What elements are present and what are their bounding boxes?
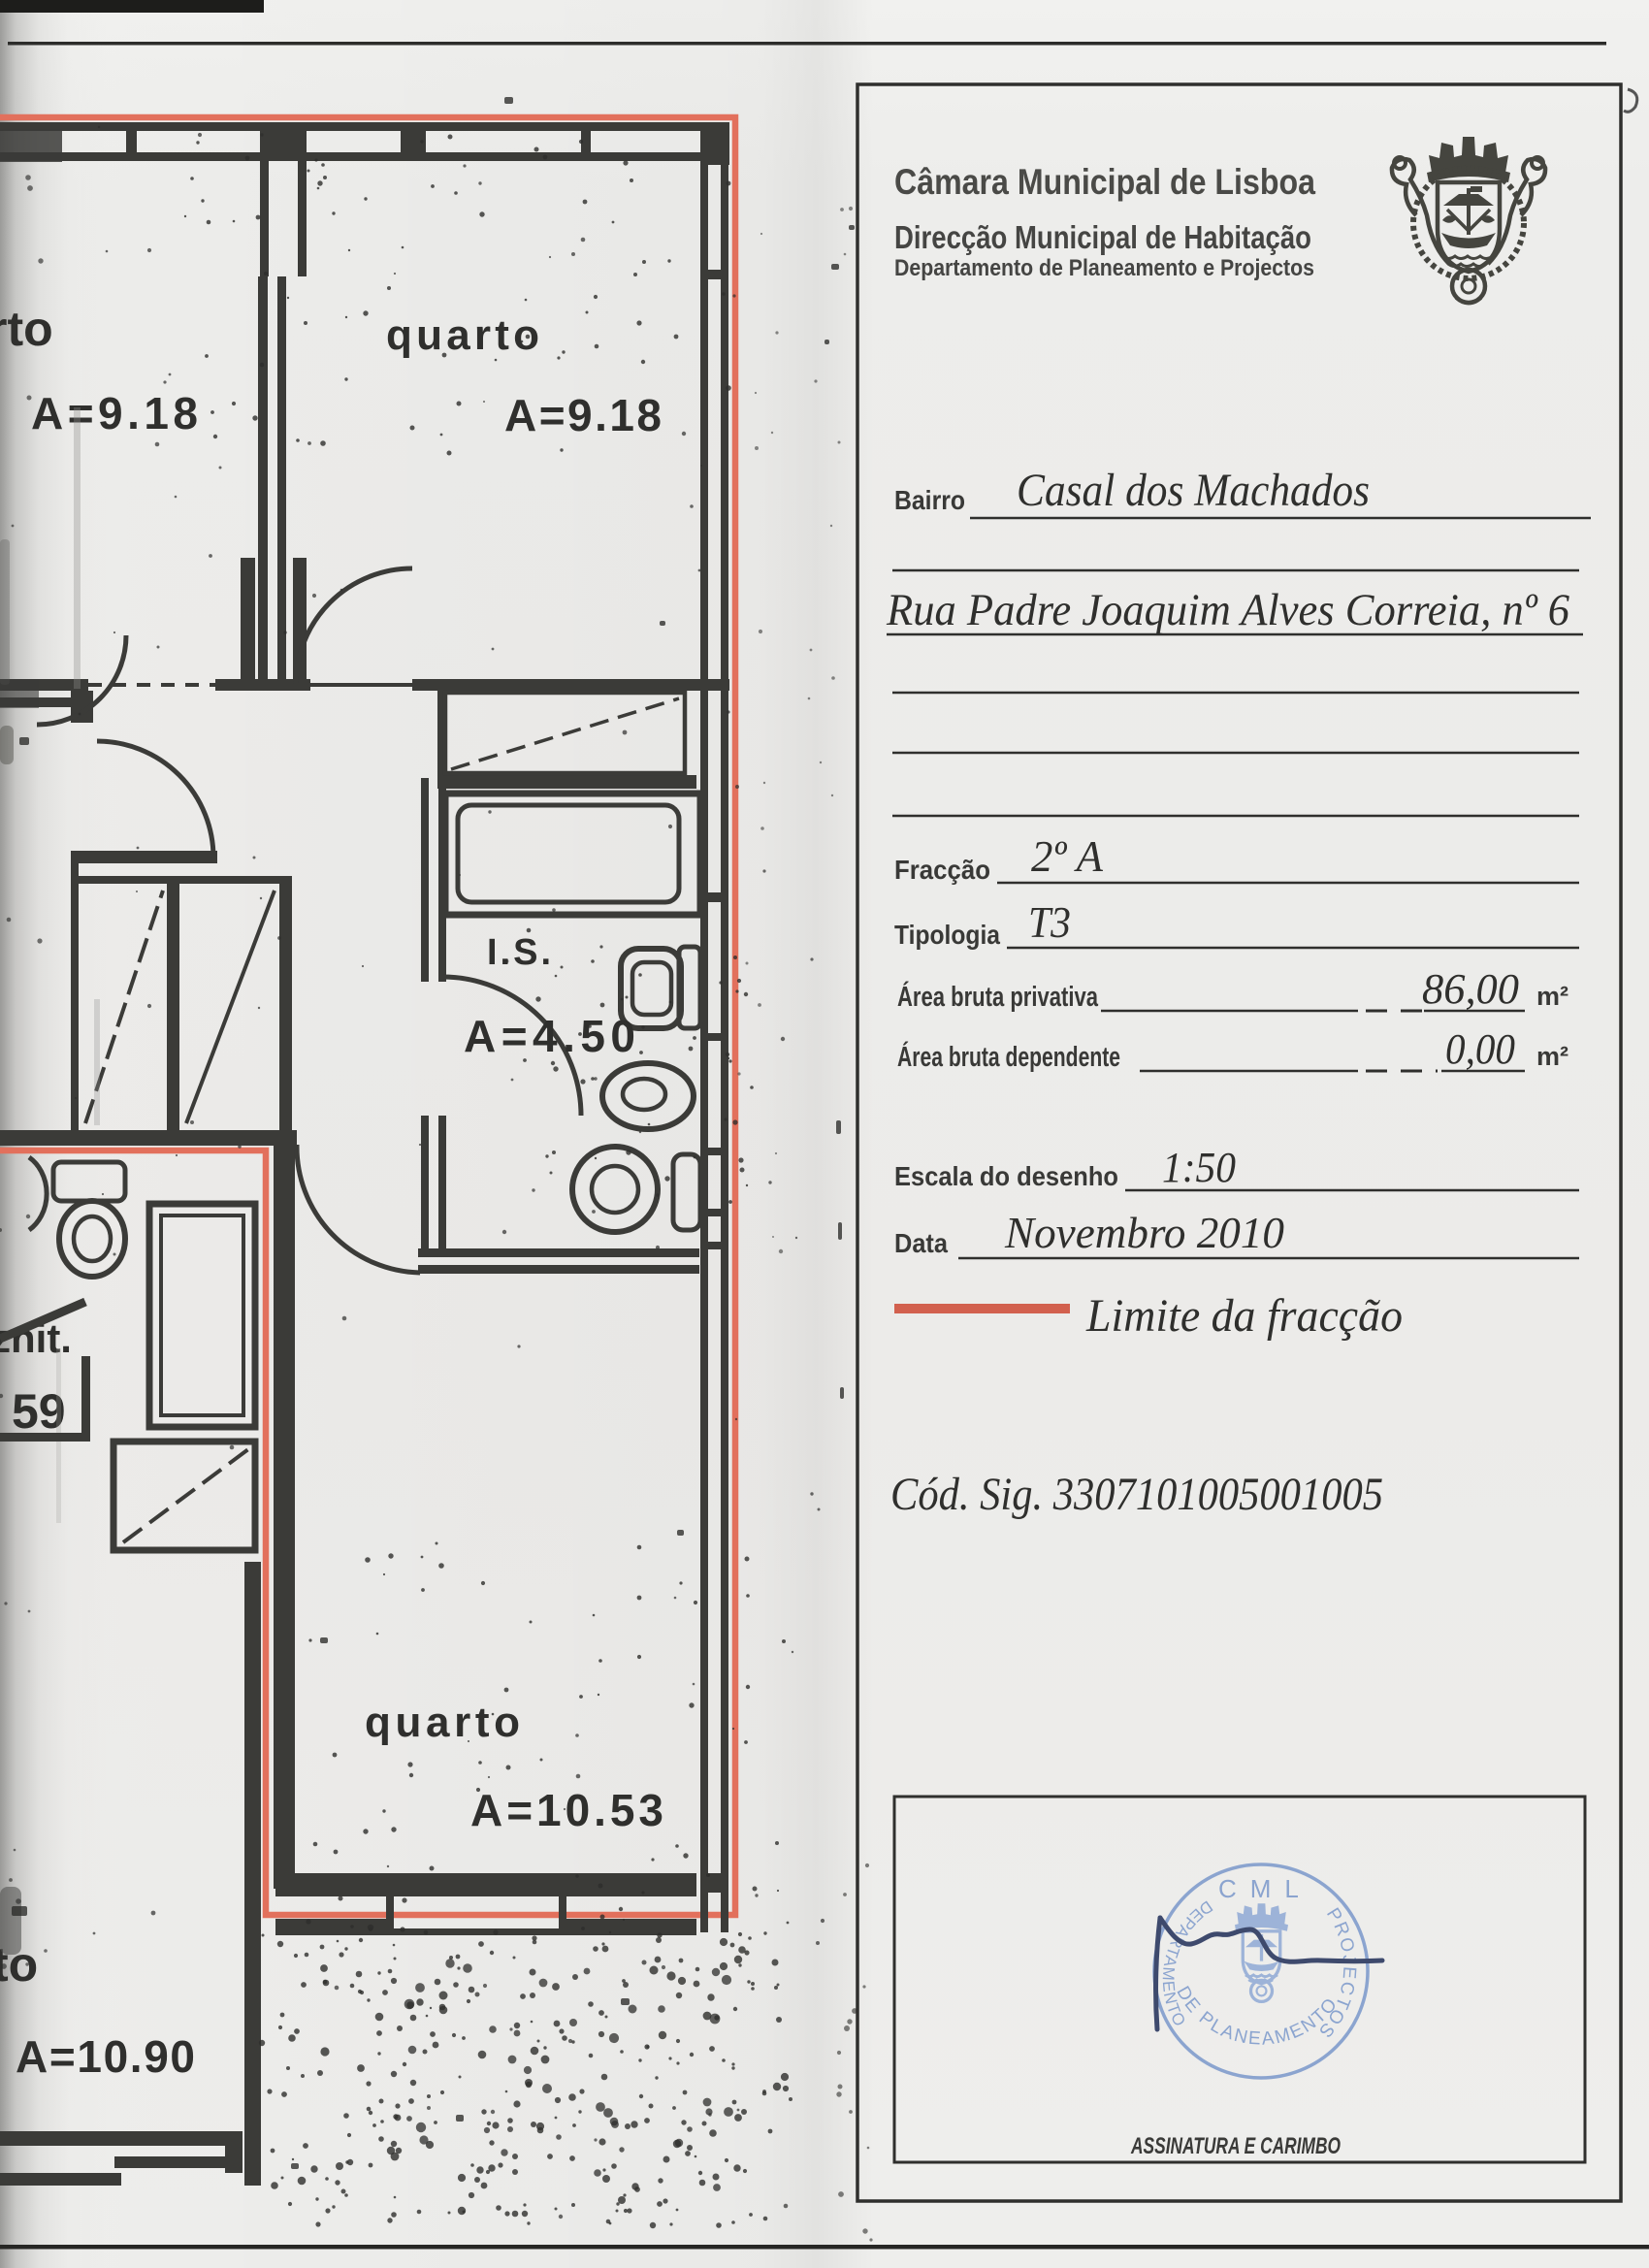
svg-text:Data: Data bbox=[894, 1228, 948, 1258]
svg-text:A=9.18: A=9.18 bbox=[504, 390, 662, 440]
svg-text:Rua Padre Joaquim Alves Correi: Rua Padre Joaquim Alves Correia, nº 6 bbox=[886, 585, 1569, 635]
svg-text:2º A: 2º A bbox=[1031, 831, 1104, 881]
svg-text:Direcção Municipal de Habitaçã: Direcção Municipal de Habitação bbox=[894, 219, 1311, 255]
svg-text:0,00: 0,00 bbox=[1445, 1025, 1515, 1073]
svg-text:quarto: quarto bbox=[365, 1699, 520, 1746]
svg-text:Fracção: Fracção bbox=[894, 855, 990, 885]
svg-text:A=4.50: A=4.50 bbox=[464, 1011, 635, 1061]
svg-text:1:50: 1:50 bbox=[1162, 1144, 1236, 1191]
svg-text:m²: m² bbox=[1536, 1042, 1568, 1071]
svg-text:Limite da fracção: Limite da fracção bbox=[1085, 1290, 1403, 1342]
svg-text:rto: rto bbox=[0, 302, 53, 356]
svg-text:A=9.18: A=9.18 bbox=[31, 388, 198, 438]
svg-text:Escala do desenho: Escala do desenho bbox=[894, 1161, 1118, 1191]
svg-text:quarto: quarto bbox=[386, 311, 539, 359]
svg-text:A=10.90: A=10.90 bbox=[16, 2031, 195, 2082]
svg-text:I.S.: I.S. bbox=[487, 932, 551, 973]
svg-text:Departamento de Planeamento e: Departamento de Planeamento e Projectos bbox=[894, 255, 1314, 281]
svg-text:ASSINATURA E CARIMBO: ASSINATURA E CARIMBO bbox=[1130, 2133, 1341, 2159]
svg-text:A=10.53: A=10.53 bbox=[470, 1785, 663, 1835]
svg-text:Cód. Sig. 3307101005001005: Cód. Sig. 3307101005001005 bbox=[890, 1469, 1383, 1520]
svg-text:86,00: 86,00 bbox=[1422, 965, 1519, 1013]
svg-text:Novembro 2010: Novembro 2010 bbox=[1004, 1208, 1284, 1257]
svg-text:Tipologia: Tipologia bbox=[894, 920, 1000, 950]
svg-text:Área bruta privativa: Área bruta privativa bbox=[897, 980, 1099, 1013]
svg-text:PROJECTOS: PROJECTOS bbox=[1313, 1904, 1359, 2042]
svg-text:Casal dos Machados: Casal dos Machados bbox=[1017, 465, 1370, 516]
svg-text:m²: m² bbox=[1536, 982, 1568, 1011]
svg-text:Bairro: Bairro bbox=[894, 485, 965, 515]
svg-text:T3: T3 bbox=[1028, 897, 1071, 947]
svg-text:Área bruta dependente: Área bruta dependente bbox=[897, 1040, 1120, 1073]
svg-text:Câmara Municipal de Lisboa: Câmara Municipal de Lisboa bbox=[894, 162, 1315, 202]
svg-text:CML: CML bbox=[1218, 1874, 1312, 1903]
